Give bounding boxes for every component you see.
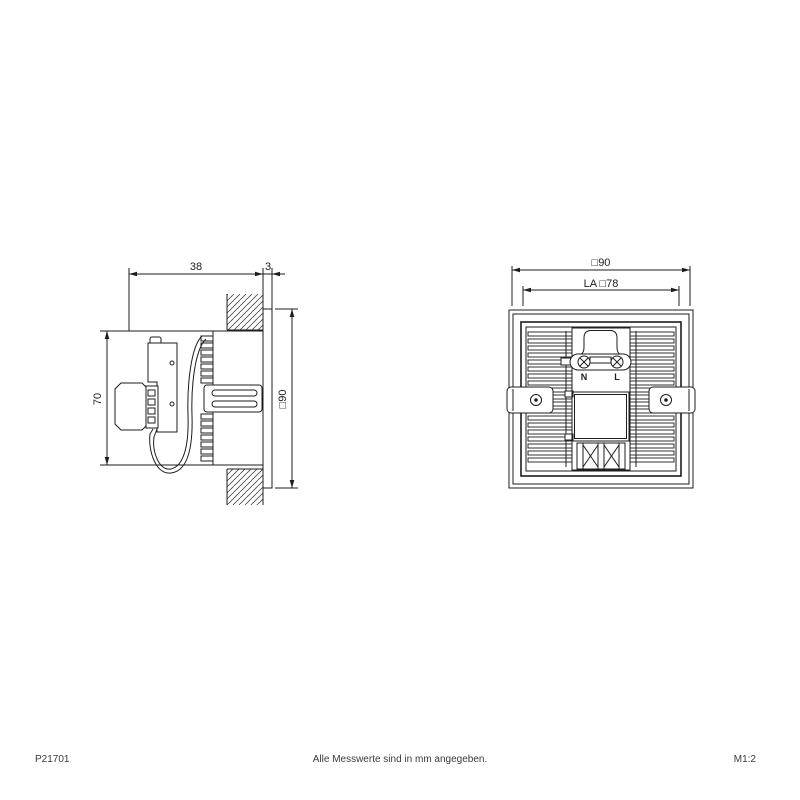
- connector-block: [115, 383, 158, 430]
- technical-drawing: 38 3 70 □90: [0, 0, 800, 800]
- mounting-clip-side: [204, 385, 262, 412]
- dim-label-face-size: □90: [277, 390, 289, 409]
- measurement-note: Alle Messwerte sind in mm angegeben.: [0, 754, 800, 765]
- wall-hatch-bottom: [227, 469, 263, 505]
- dim-label-frame-thickness: 3: [265, 261, 271, 273]
- face-plate: [263, 309, 272, 488]
- centre-column: N L: [561, 328, 631, 470]
- wall-hatch-top: [227, 294, 263, 330]
- scale-indicator: M1:2: [734, 754, 756, 765]
- dim-label-depth: 38: [190, 261, 202, 273]
- screw-neutral: [578, 356, 590, 368]
- dim-label-cutout: LA □78: [584, 278, 619, 290]
- dimension-face-size: □90: [275, 309, 298, 488]
- dimension-cutout: LA □78: [523, 278, 679, 306]
- mounting-clip-left: [507, 387, 553, 413]
- terminal-label-live: L: [614, 372, 620, 382]
- dim-label-outer: □90: [592, 257, 611, 269]
- rear-view: □90 LA □78: [507, 257, 695, 488]
- side-view: 38 3 70 □90: [92, 261, 298, 505]
- mounting-clip-right: [649, 387, 695, 413]
- screw-live: [611, 356, 623, 368]
- dim-label-height: 70: [92, 393, 104, 405]
- sensor-octagon: [115, 383, 148, 430]
- terminal-label-neutral: N: [581, 372, 588, 382]
